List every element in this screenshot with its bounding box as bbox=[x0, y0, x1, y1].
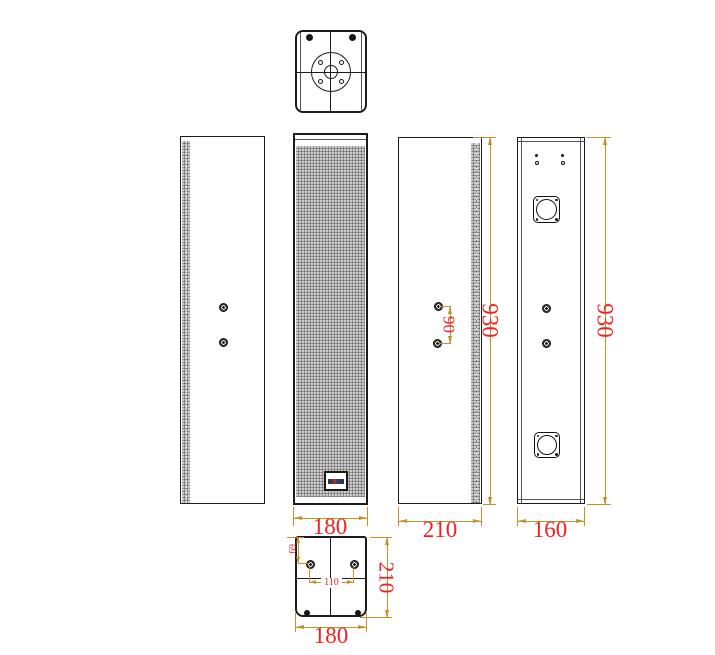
rear-view bbox=[517, 137, 585, 504]
vent-hole bbox=[561, 154, 564, 157]
arrowhead bbox=[603, 137, 607, 145]
side-wall-line bbox=[580, 138, 581, 503]
extension-line bbox=[584, 507, 585, 526]
screw-insert bbox=[219, 338, 228, 347]
front-view bbox=[293, 133, 368, 505]
left-side-view bbox=[180, 136, 265, 504]
bottom-trim-line bbox=[518, 499, 584, 500]
speakon-connector-top bbox=[533, 196, 560, 223]
dim-front-height-label: 930 bbox=[479, 292, 502, 350]
flange-center-hole bbox=[324, 65, 338, 79]
dim-rear-width-label: 160 bbox=[528, 518, 572, 541]
arrowhead bbox=[296, 625, 304, 629]
extension-line bbox=[517, 507, 518, 526]
arrowhead bbox=[448, 336, 452, 344]
extension-line bbox=[398, 507, 399, 526]
arrowhead bbox=[385, 610, 389, 618]
connector-screw bbox=[555, 199, 558, 202]
dim-bottom-insert-offset-label: 69 bbox=[285, 542, 295, 556]
grille bbox=[296, 146, 365, 497]
connector-screw bbox=[537, 435, 540, 438]
dim-bottom-depth-label: 210 bbox=[376, 557, 397, 599]
connector-screw bbox=[536, 218, 539, 221]
corner-foot bbox=[355, 610, 361, 616]
vent-hole bbox=[535, 161, 539, 165]
screw-insert bbox=[542, 339, 551, 348]
flange-bolt-hole bbox=[318, 60, 323, 65]
extension-line bbox=[367, 507, 368, 526]
grille-strip-dash bbox=[186, 141, 187, 503]
extension-line bbox=[295, 613, 296, 632]
top-screw bbox=[349, 34, 356, 41]
top-trim-line bbox=[518, 141, 584, 142]
vent-hole bbox=[535, 154, 538, 157]
dim-bottom-width-label: 180 bbox=[309, 624, 353, 647]
connector-screw bbox=[555, 453, 558, 456]
connector-screw bbox=[537, 453, 540, 456]
arrowhead bbox=[473, 519, 481, 523]
top-trim-line bbox=[295, 139, 366, 140]
screw-insert bbox=[306, 560, 315, 569]
corner-foot bbox=[304, 610, 310, 616]
arrowhead bbox=[488, 137, 492, 145]
arrowhead bbox=[603, 497, 607, 505]
arrowhead bbox=[294, 516, 302, 520]
arrowhead bbox=[518, 519, 526, 523]
connector-screw bbox=[536, 199, 539, 202]
screw-insert bbox=[350, 560, 359, 569]
arrowhead bbox=[399, 519, 407, 523]
arrowhead bbox=[310, 580, 316, 584]
connector-screw bbox=[555, 435, 558, 438]
arrowhead bbox=[347, 580, 353, 584]
arrowhead bbox=[488, 497, 492, 505]
dim-bottom-insert-spacing-label: 110 bbox=[321, 578, 342, 588]
vent-hole bbox=[561, 161, 565, 165]
logo-mark bbox=[328, 479, 344, 484]
connector-barrel bbox=[536, 199, 557, 220]
extension-line bbox=[366, 613, 367, 632]
arrowhead bbox=[359, 516, 367, 520]
flange-bolt-hole bbox=[339, 60, 344, 65]
arrowhead bbox=[358, 625, 366, 629]
grille-strip-dash bbox=[476, 143, 477, 503]
dim-front-width-label: 180 bbox=[308, 515, 352, 538]
arrowhead bbox=[385, 537, 389, 545]
extension-line bbox=[587, 504, 611, 505]
screw-insert bbox=[542, 304, 551, 313]
dim-side-depth-label: 210 bbox=[418, 518, 462, 541]
top-view bbox=[295, 30, 367, 113]
leader-line bbox=[298, 563, 309, 564]
connector-screw bbox=[555, 218, 558, 221]
dim-rear-height-label: 930 bbox=[594, 292, 617, 350]
flange-bolt-hole bbox=[339, 79, 344, 84]
connector-barrel bbox=[537, 435, 557, 455]
speakon-connector-bottom bbox=[534, 432, 560, 458]
extension-line bbox=[481, 507, 482, 526]
side-wall-line bbox=[521, 138, 522, 503]
flange-bolt-hole bbox=[318, 79, 323, 84]
grille-strip bbox=[182, 141, 190, 503]
top-screw bbox=[306, 34, 313, 41]
screw-insert bbox=[219, 303, 228, 312]
arrowhead bbox=[576, 519, 584, 523]
extension-line bbox=[587, 137, 611, 138]
mounting-flange bbox=[311, 52, 351, 92]
logo-badge bbox=[324, 471, 348, 491]
drawing-sheet: 90 930 930 180 210 bbox=[0, 0, 715, 655]
leader-line bbox=[353, 566, 354, 583]
extension-line bbox=[473, 137, 496, 138]
dim-screw-spacing-label: 90 bbox=[441, 313, 458, 337]
arrowhead bbox=[296, 537, 300, 543]
